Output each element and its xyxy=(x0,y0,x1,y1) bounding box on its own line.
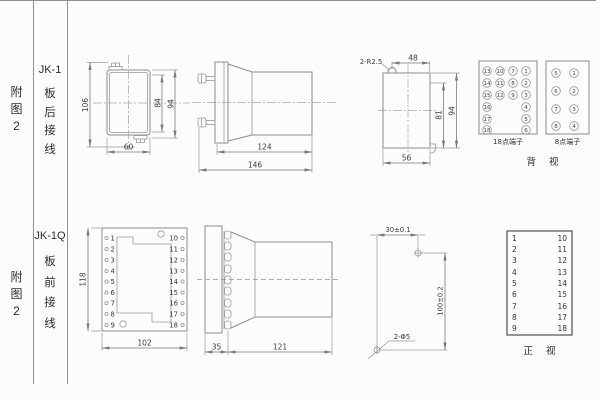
svg-text:5: 5 xyxy=(524,117,528,123)
svg-text:13: 13 xyxy=(169,267,178,275)
dim-81: 81 xyxy=(435,110,444,120)
svg-text:7: 7 xyxy=(111,299,115,307)
svg-text:8: 8 xyxy=(511,81,515,87)
note-2-r2.5: 2-R2.5 xyxy=(360,58,382,66)
svg-text:4: 4 xyxy=(111,267,115,275)
row1-model-label: JK-1 板 后 接 线 xyxy=(33,65,67,156)
dim-30: 30±0.1 xyxy=(385,226,410,234)
svg-text:4: 4 xyxy=(524,105,528,111)
svg-text:16: 16 xyxy=(169,299,178,307)
svg-text:9: 9 xyxy=(512,324,517,333)
wiring-char: 线 xyxy=(44,319,56,331)
svg-text:17: 17 xyxy=(483,117,491,123)
svg-text:10: 10 xyxy=(557,234,567,243)
wiring-char: 板 xyxy=(44,257,56,269)
dim-48: 48 xyxy=(408,54,418,63)
centerlines xyxy=(378,64,438,153)
svg-text:14: 14 xyxy=(483,81,491,87)
svg-text:5: 5 xyxy=(111,278,115,286)
svg-text:10: 10 xyxy=(169,234,178,242)
svg-text:7: 7 xyxy=(554,107,558,113)
svg-text:14: 14 xyxy=(169,278,178,286)
dim-102: 102 xyxy=(137,339,152,348)
svg-text:9: 9 xyxy=(111,321,115,329)
left-terminal-column: 1 2 3 4 5 6 7 8 9 xyxy=(105,234,115,329)
svg-text:11: 11 xyxy=(496,81,504,87)
svg-text:16: 16 xyxy=(557,302,567,311)
svg-text:18: 18 xyxy=(557,324,567,333)
dim-94: 94 xyxy=(167,99,176,109)
figure-char: 附 xyxy=(10,86,22,98)
wiring-char: 接 xyxy=(44,126,56,138)
dim-60: 60 xyxy=(124,143,134,152)
svg-text:10: 10 xyxy=(496,69,504,75)
svg-text:9: 9 xyxy=(511,93,515,99)
dim-35: 35 xyxy=(212,343,222,352)
svg-text:6: 6 xyxy=(512,290,517,299)
svg-text:11: 11 xyxy=(169,245,178,253)
wiring-char: 接 xyxy=(44,298,56,310)
model-name: JK-1 xyxy=(39,65,62,76)
svg-text:17: 17 xyxy=(169,310,178,318)
row2-model-label: JK-1Q 板 前 接 线 xyxy=(33,231,67,330)
svg-text:2: 2 xyxy=(512,245,517,254)
mounting-hole-top xyxy=(158,231,164,237)
svg-text:13: 13 xyxy=(557,268,567,277)
dimension-lines xyxy=(87,63,178,156)
left-number-column: 1 2 3 4 5 6 7 8 9 xyxy=(512,234,517,333)
svg-text:8: 8 xyxy=(554,124,558,130)
wiring-char: 后 xyxy=(44,108,56,120)
front-view-label: 正 视 xyxy=(523,345,560,357)
svg-text:8: 8 xyxy=(111,310,115,318)
svg-text:2: 2 xyxy=(111,245,115,253)
table-border-col2 xyxy=(67,0,68,384)
cutout-contour xyxy=(117,237,171,322)
label-18-point: 18点端子 xyxy=(493,137,523,146)
model-name: JK-1Q xyxy=(34,231,65,242)
side-view-rear-wiring: 124 146 xyxy=(190,45,340,180)
svg-text:2: 2 xyxy=(572,89,576,95)
svg-text:5: 5 xyxy=(512,279,517,288)
svg-text:12: 12 xyxy=(496,93,503,99)
note-2-phi5: 2-Φ5 xyxy=(394,333,410,341)
rear-view-drawing: 2-R2.5 48 81 94 56 xyxy=(350,50,475,175)
svg-text:1: 1 xyxy=(572,71,576,77)
table-border-bottom xyxy=(0,0,596,1)
wiring-char: 前 xyxy=(44,278,56,290)
svg-text:14: 14 xyxy=(557,279,567,288)
terminal-circles-18: 13 14 15 16 17 18 10 11 12 7 8 9 1 2 3 4… xyxy=(483,67,531,135)
svg-text:18: 18 xyxy=(169,321,178,329)
dim-146: 146 xyxy=(248,161,263,170)
front-view-drawing: 106 84 94 60 xyxy=(80,45,195,165)
side-view-front-wiring: 35 121 xyxy=(195,220,345,365)
svg-text:1: 1 xyxy=(512,234,517,243)
dim-121: 121 xyxy=(273,343,288,352)
svg-text:3: 3 xyxy=(111,256,115,264)
mounting-hole-bottom xyxy=(120,321,126,327)
figure-char: 附 xyxy=(10,271,22,283)
svg-text:13: 13 xyxy=(483,69,491,75)
figure-char: 2 xyxy=(13,305,20,317)
svg-text:6: 6 xyxy=(554,89,558,95)
svg-text:2: 2 xyxy=(524,81,528,87)
svg-text:7: 7 xyxy=(511,69,515,75)
dim-56: 56 xyxy=(402,154,412,163)
wiring-char: 板 xyxy=(44,89,56,101)
wiring-char: 线 xyxy=(44,145,56,157)
svg-text:15: 15 xyxy=(557,290,567,299)
svg-text:6: 6 xyxy=(111,289,115,297)
svg-text:3: 3 xyxy=(512,256,517,265)
dim-118: 118 xyxy=(79,272,88,287)
row1-figure-label: 附 图 2 xyxy=(0,86,33,132)
dim-100: 100±0.2 xyxy=(437,286,445,315)
figure-char: 图 xyxy=(10,288,22,300)
figure-char: 2 xyxy=(13,120,20,132)
terminal-front-table: 1 2 3 4 5 6 7 8 9 10 11 12 13 14 15 16 1… xyxy=(495,220,600,365)
svg-text:17: 17 xyxy=(557,313,567,322)
technical-drawing-sheet: 附 图 2 JK-1 板 后 接 线 附 图 2 JK-1Q 板 前 接 线 xyxy=(0,0,600,400)
dim-106: 106 xyxy=(81,98,90,113)
svg-text:6: 6 xyxy=(524,128,528,134)
svg-text:3: 3 xyxy=(572,107,576,113)
label-8-point: 8点端子 xyxy=(555,137,580,146)
back-view-label: 背 视 xyxy=(526,156,563,168)
svg-text:12: 12 xyxy=(169,256,178,264)
terminal-back-view: 13 14 15 16 17 18 10 11 12 7 8 9 1 2 3 4… xyxy=(475,55,600,175)
svg-text:16: 16 xyxy=(483,105,491,111)
panel-front-view: 1 2 3 4 5 6 7 8 9 10 11 12 13 14 15 16 1… xyxy=(75,215,200,365)
svg-text:15: 15 xyxy=(169,289,178,297)
svg-text:1: 1 xyxy=(111,234,115,242)
svg-text:18: 18 xyxy=(483,128,491,134)
svg-text:5: 5 xyxy=(554,71,558,77)
terminal-studs xyxy=(198,74,215,127)
svg-text:7: 7 xyxy=(512,302,517,311)
right-number-column: 10 11 12 13 14 15 16 17 18 xyxy=(557,234,567,333)
svg-text:11: 11 xyxy=(557,245,567,254)
figure-char: 图 xyxy=(10,103,22,115)
svg-text:3: 3 xyxy=(524,93,528,99)
terminal-circles-8: 5 6 7 8 1 2 3 4 xyxy=(552,69,579,131)
svg-text:4: 4 xyxy=(512,268,517,277)
right-terminal-column: 10 11 12 13 14 15 16 17 18 xyxy=(169,234,184,329)
drilling-plan: 30±0.1 100±0.2 2-Φ5 xyxy=(360,220,470,365)
row2-figure-label: 附 图 2 xyxy=(0,271,33,317)
svg-text:12: 12 xyxy=(557,256,567,265)
terminal-bumps xyxy=(225,231,232,329)
svg-text:15: 15 xyxy=(483,93,491,99)
svg-text:4: 4 xyxy=(572,124,576,130)
dim-124: 124 xyxy=(257,143,272,152)
dim-84: 84 xyxy=(154,98,163,108)
dim-94: 94 xyxy=(448,106,457,116)
svg-text:8: 8 xyxy=(512,313,517,322)
svg-text:1: 1 xyxy=(524,69,528,75)
